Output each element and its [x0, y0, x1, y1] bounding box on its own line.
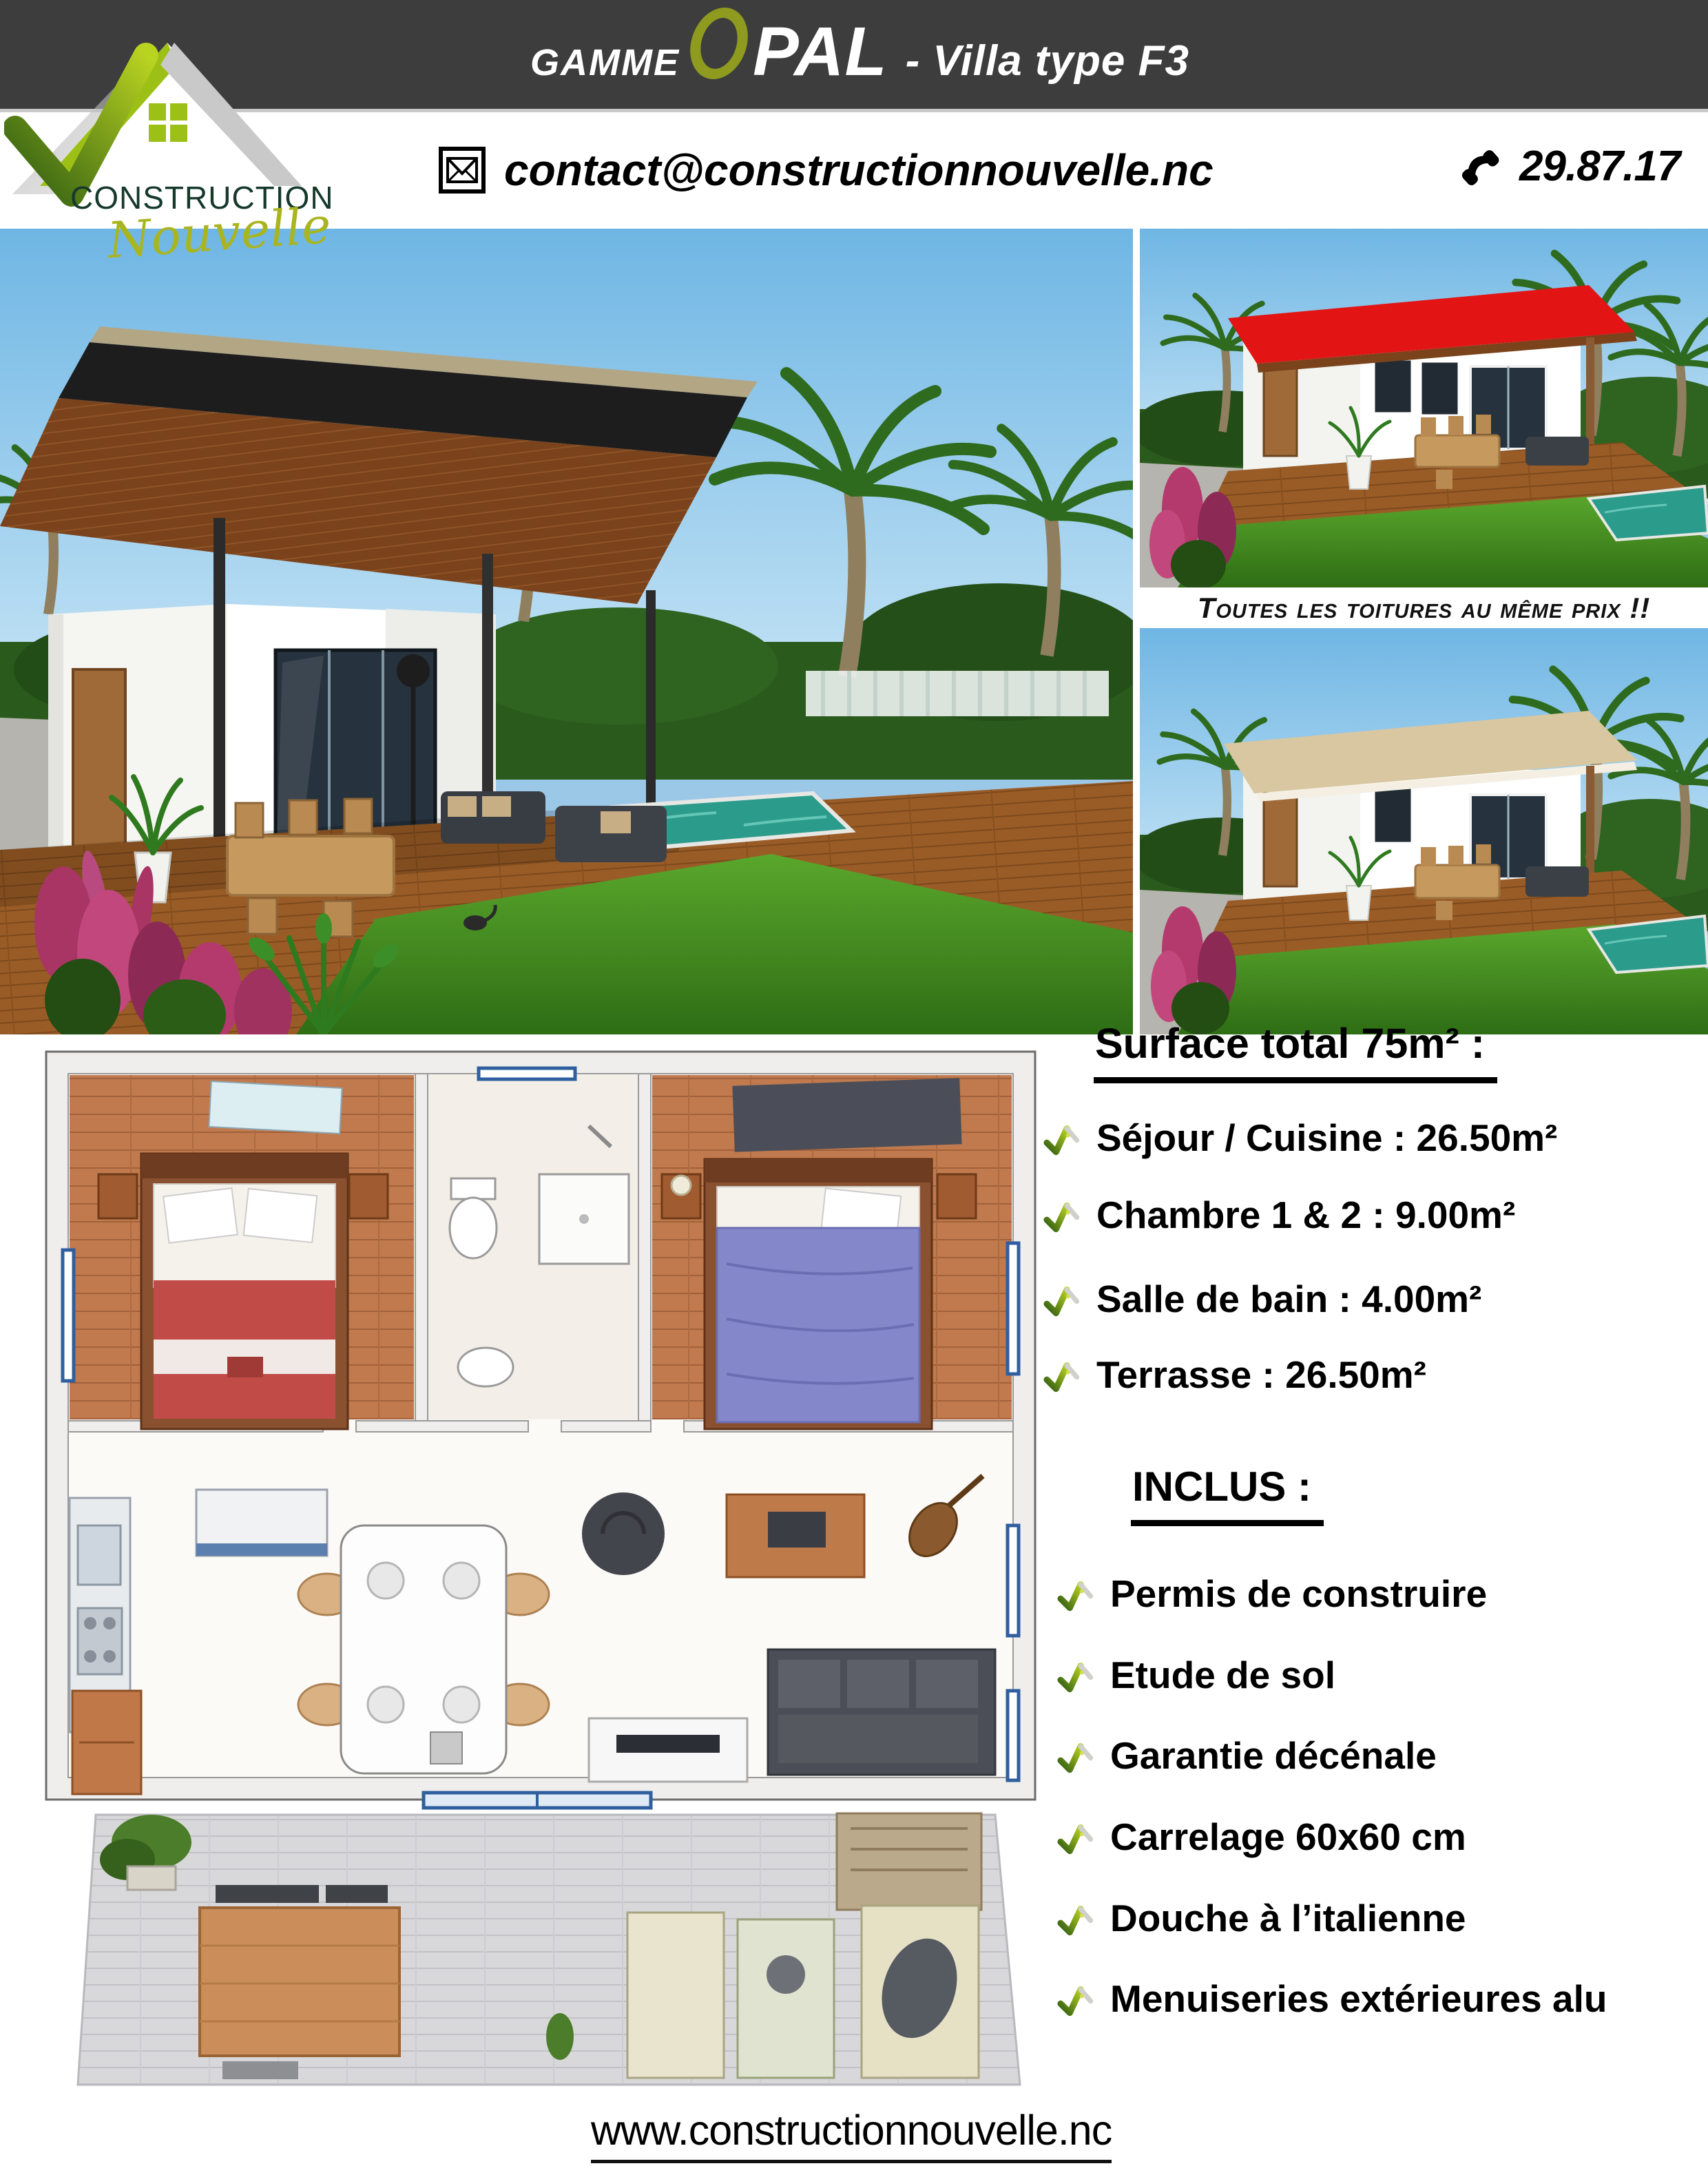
roof-check-icon	[1041, 1118, 1084, 1158]
inclus-item-menuiseries: Menuiseries extérieures alu	[1055, 1977, 1607, 2021]
roof-check-icon	[1055, 1574, 1098, 1614]
villa-photo-tan-roof	[1140, 628, 1708, 1034]
title-gamme: GAMME	[530, 42, 680, 83]
surface-item-terrasse: Terrasse : 26.50m²	[1041, 1353, 1426, 1397]
roof-check-icon	[1041, 1195, 1084, 1235]
bed-2	[705, 1159, 932, 1429]
white-fence	[806, 671, 1109, 716]
title-opal: OPAL	[689, 13, 888, 90]
sofa	[768, 1649, 995, 1775]
title-opal-o: O	[685, 8, 753, 79]
email-contact: contact@constructionnouvelle.nc	[438, 145, 1214, 196]
inclus-item-carrelage: Carrelage 60x60 cm	[1055, 1815, 1466, 1859]
floor-plan	[38, 1043, 1043, 2094]
surface-item-sejour: Séjour / Cuisine : 26.50m²	[1041, 1116, 1557, 1160]
sink	[458, 1348, 513, 1386]
inclus-item-garantie: Garantie décénale	[1055, 1733, 1437, 1778]
surface-item-chambres: Chambre 1 & 2 : 9.00m²	[1041, 1193, 1515, 1237]
roof-check-icon	[1041, 1355, 1084, 1395]
envelope-icon	[438, 146, 486, 194]
email-address[interactable]: contact@constructionnouvelle.nc	[504, 145, 1214, 196]
title-opal-rest: PAL	[753, 13, 888, 90]
phone-receiver-icon	[1459, 144, 1504, 189]
villa-photo-red-roof	[1140, 229, 1708, 587]
terrace-table	[200, 1885, 399, 2079]
roof-check-icon	[1041, 1279, 1084, 1319]
roof-price-banner: Toutes les toitures au même prix !!	[1140, 587, 1708, 628]
phone-contact: 29.87.17	[1459, 142, 1680, 191]
bed-1	[141, 1154, 348, 1429]
tv-cabinet	[589, 1718, 747, 1782]
roof-check-icon	[1055, 1898, 1098, 1938]
inclus-item-permis: Permis de construire	[1055, 1572, 1487, 1616]
toilet	[450, 1178, 497, 1258]
flyer-page: GAMMEOPAL- Villa type F3 CONSTRUCTION No…	[0, 0, 1708, 2177]
page-title: GAMMEOPAL- Villa type F3	[530, 0, 1189, 109]
roof-price-banner-text: Toutes les toitures au même prix !!	[1198, 592, 1651, 625]
inclus-heading: INCLUS :	[1131, 1463, 1324, 1526]
title-subtitle: - Villa type F3	[906, 37, 1189, 85]
inclus-item-douche: Douche à l’italienne	[1055, 1896, 1466, 1940]
roof-check-icon	[1055, 1979, 1098, 2019]
roof-check-icon	[1055, 1817, 1098, 1857]
roof-check-icon	[1055, 1655, 1098, 1695]
armchair	[582, 1492, 665, 1575]
brand-logo: CONSTRUCTION Nouvelle	[4, 40, 328, 229]
website-link[interactable]: www.constructionnouvelle.nc	[591, 2106, 1112, 2163]
roof-check-icon	[1055, 1736, 1098, 1775]
surface-item-salle-de-bain: Salle de bain : 4.00m²	[1041, 1277, 1481, 1321]
phone-number[interactable]: 29.87.17	[1519, 142, 1680, 191]
surface-heading: Surface total 75m² :	[1094, 1019, 1497, 1083]
inclus-item-etude: Etude de sol	[1055, 1653, 1335, 1697]
villa-photo-main	[0, 229, 1133, 1034]
